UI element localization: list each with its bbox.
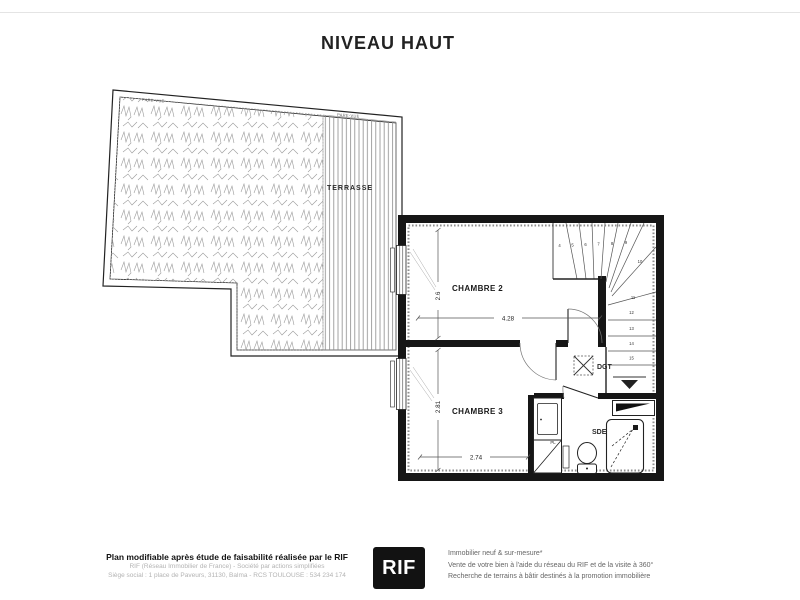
chambre3-label: CHAMBRE 3 [452, 407, 503, 416]
footer-address: Siège social : 1 place de Paveurs, 31130… [62, 572, 392, 581]
stair-step-number: 11 [631, 295, 636, 300]
terrace-area: TERRASSE PARE-VUE PARE-VUE [103, 90, 402, 356]
footer-disclaimer: Plan modifiable après étude de faisabili… [62, 552, 392, 563]
chambre2-label: CHAMBRE 2 [452, 284, 503, 293]
dim-chambre3-width: 2.74 [470, 455, 483, 462]
stair-step-number: 15 [629, 356, 634, 361]
footer-service-line: Vente de votre bien à l'aide du réseau d… [448, 560, 778, 572]
toilet [578, 443, 597, 474]
vanity-unit [534, 398, 562, 440]
dim-chambre3-depth: 2.81 [435, 400, 442, 413]
floor-plan-page: NIVEAU HAUT TERRASSE PARE-VUE PARE-VUE [0, 0, 800, 600]
footer-service-line: Immobilier neuf & sur-mesure* [448, 548, 778, 560]
window-chambre2 [391, 246, 407, 295]
footer-legal-block: Plan modifiable après étude de faisabili… [62, 552, 392, 580]
dim-chambre2-width: 4.28 [502, 316, 515, 323]
sde-label: SDE [592, 429, 607, 436]
rif-logo: RIF [373, 547, 425, 589]
stair-step-number: 13 [629, 326, 634, 331]
footer-company: RIF (Réseau Immobilier de France) - Soci… [62, 563, 392, 572]
terrace-deck-boards [323, 115, 396, 350]
stair-step-number: 12 [629, 310, 634, 315]
footer-service-line: Recherche de terrains à bâtir destinés à… [448, 571, 778, 583]
placard-label: PL [550, 440, 556, 445]
footer-services-block: Immobilier neuf & sur-mesure* Vente de v… [448, 548, 778, 583]
terrace-planted-hatch [110, 97, 323, 350]
stair-step-number: 10 [638, 259, 643, 264]
window-chambre3 [391, 359, 407, 410]
terrace-label: TERRASSE [327, 185, 373, 192]
towel-radiator [613, 401, 655, 416]
dim-chambre2-depth: 2.6 [435, 291, 442, 300]
dgt-label: DGT [597, 364, 613, 371]
stair-step-number: 14 [629, 341, 634, 346]
floor-plan-drawing: TERRASSE PARE-VUE PARE-VUE [0, 0, 800, 540]
rif-logo-text: RIF [382, 557, 416, 580]
